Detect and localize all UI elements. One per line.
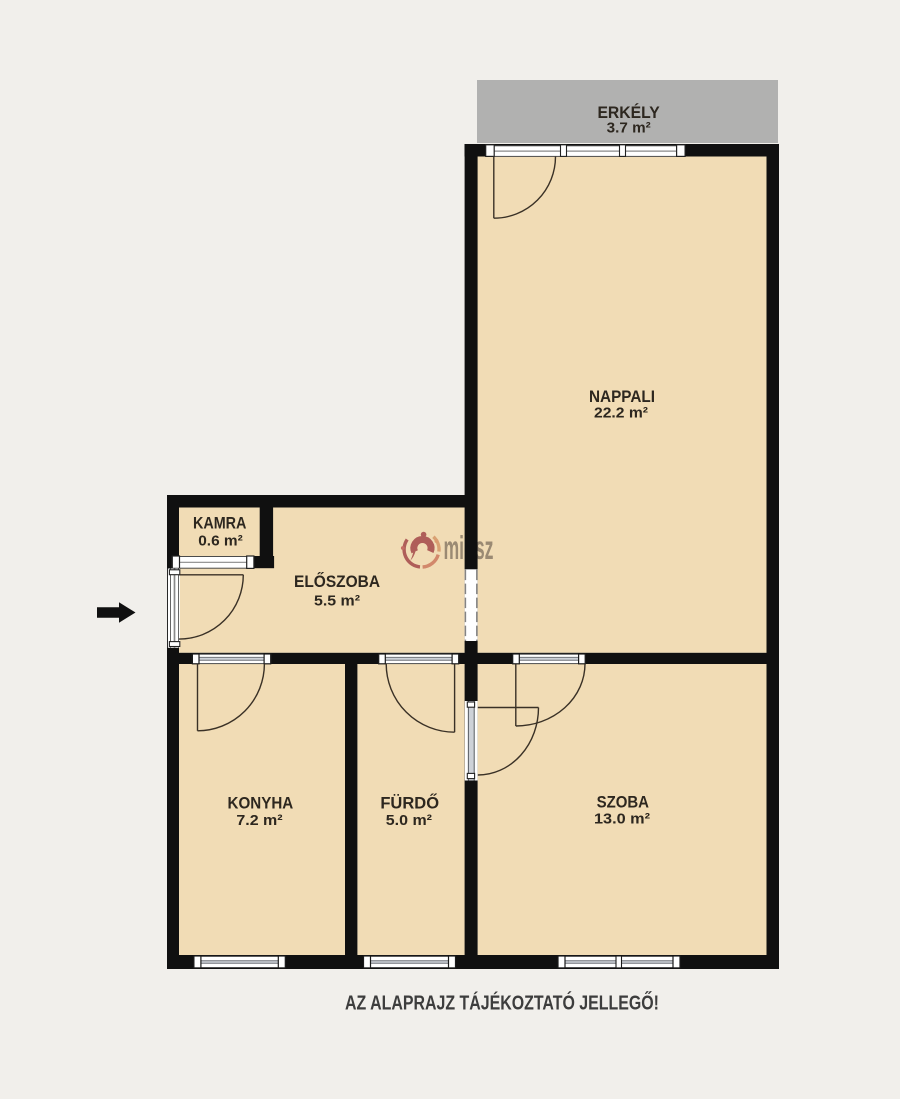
svg-text:NAPPALI: NAPPALI: [589, 388, 655, 406]
svg-text:3.7 m²: 3.7 m²: [607, 120, 651, 137]
svg-text:ELŐSZOBA: ELŐSZOBA: [294, 572, 380, 591]
svg-text:AZ ALAPRAJZ TÁJÉKOZTATÓ JELLEG: AZ ALAPRAJZ TÁJÉKOZTATÓ JELLEGŐ!: [345, 991, 659, 1015]
svg-text:22.2 m²: 22.2 m²: [594, 404, 648, 421]
svg-text:SZOBA: SZOBA: [597, 794, 649, 812]
svg-text:5.0 m²: 5.0 m²: [386, 812, 432, 829]
svg-text:FÜRDŐ: FÜRDŐ: [380, 794, 439, 813]
svg-text:5.5 m²: 5.5 m²: [314, 593, 360, 610]
svg-text:7.2 m²: 7.2 m²: [236, 812, 282, 829]
svg-text:0.6 m²: 0.6 m²: [198, 532, 243, 549]
svg-text:13.0 m²: 13.0 m²: [594, 810, 650, 827]
svg-text:KONYHA: KONYHA: [228, 795, 294, 813]
svg-text:KAMRA: KAMRA: [193, 514, 247, 532]
